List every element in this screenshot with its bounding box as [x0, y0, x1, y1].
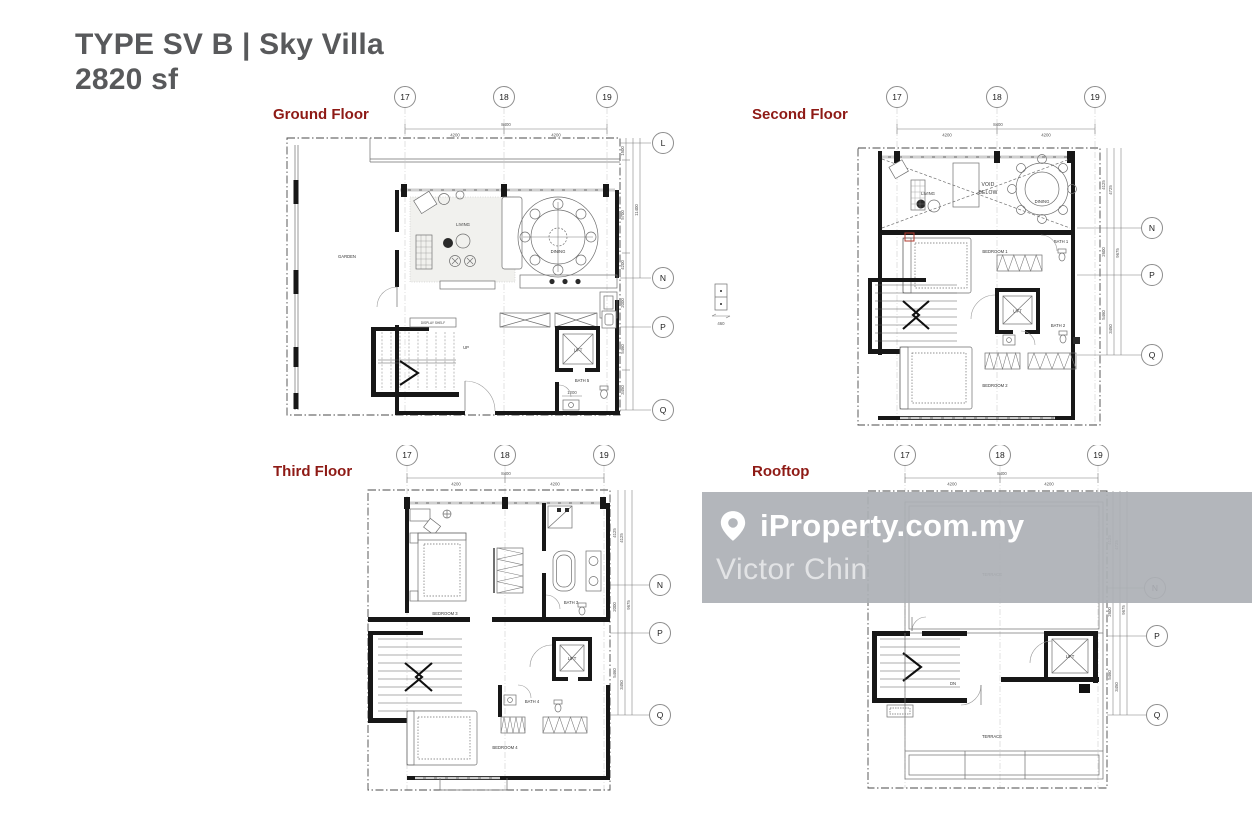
duct-block	[1079, 684, 1090, 693]
dim-seg-right: 4200	[551, 133, 561, 138]
dim-total: 8400	[997, 471, 1007, 476]
side-dim: 4125	[1101, 180, 1106, 190]
room-label-bath1: BATH 1	[1054, 239, 1069, 244]
grid-bubble-L: L	[661, 138, 666, 148]
lift: LIFT	[1001, 631, 1099, 693]
grid-bubble-P: P	[1149, 270, 1155, 280]
grid-bubble-Q: Q	[657, 710, 664, 720]
mid-detail-dim: 460	[717, 321, 725, 326]
room-label-garden: GARDEN	[338, 254, 356, 259]
void-label-2: BELOW	[978, 190, 997, 196]
watermark-brand-row: iProperty.com.my	[716, 508, 1252, 544]
side-dim: 2000	[612, 602, 617, 612]
ground-grid-bubbles-top: 17 18 19	[395, 87, 618, 108]
ground-floor-plan: 17 18 19 8400 4200 4200 GARDEN	[270, 85, 690, 430]
side-dim: 2600	[1101, 247, 1106, 257]
bedroom-4: BEDROOM 4	[407, 711, 518, 765]
lift-label: LIFT	[568, 656, 577, 661]
dim-seg-right: 4200	[1044, 482, 1054, 487]
grid-bubble-19: 19	[1090, 92, 1100, 102]
grid-bubble-Q: Q	[1149, 350, 1156, 360]
side-dim: 5460	[1107, 670, 1112, 680]
lift: LIFT	[530, 637, 592, 681]
room-label-living: LIVING	[456, 222, 470, 227]
room-label-dining: DINING	[1035, 199, 1050, 204]
watermark: iProperty.com.my Victor Chin	[702, 492, 1252, 603]
watermark-brand: iProperty.com.my	[760, 508, 1024, 544]
bath-4: BATH 4	[498, 685, 587, 733]
room-label-bedroom4: BEDROOM 4	[492, 745, 518, 750]
dim-seg-right: 4200	[550, 482, 560, 487]
grid-bubble-N: N	[1149, 223, 1155, 233]
grid-bubble-18: 18	[995, 450, 1005, 460]
side-dim: 5700	[620, 210, 625, 220]
lift: LIFT	[555, 326, 600, 372]
grid-bubble-Q: Q	[1154, 710, 1161, 720]
bedroom-3: BEDROOM 3	[410, 509, 523, 616]
bath-3: BATH 3	[546, 506, 601, 615]
dim-total: 8400	[501, 122, 511, 127]
dim-seg-left: 4200	[942, 133, 952, 138]
room-label-terrace-lower: TERRACE	[982, 734, 1002, 739]
bath-5: BATH 5 1200	[555, 378, 608, 415]
third-top-dimensions: 8400 4200 4200	[407, 471, 604, 487]
staircase	[368, 631, 468, 723]
dim-total: 8400	[501, 471, 511, 476]
grid-bubble-P: P	[1154, 631, 1160, 641]
stair-direction-label: DN	[950, 681, 956, 686]
grid-bubble-P: P	[657, 628, 663, 638]
rooftop-grid-bubbles-top: 17 18 19	[895, 445, 1109, 466]
page-title-line1: TYPE SV B | Sky Villa	[75, 28, 384, 63]
grid-bubble-19: 19	[602, 92, 612, 102]
kitchen	[500, 275, 617, 328]
room-label-bedroom2: BEDROOM 2	[982, 383, 1008, 388]
grid-bubble-Q: Q	[660, 405, 667, 415]
side-dim: 5460	[620, 344, 625, 354]
mid-detail: 460	[700, 280, 745, 335]
side-dim: 9675	[1115, 248, 1120, 258]
side-dim: 9675	[1121, 605, 1126, 615]
grid-bubble-19: 19	[1093, 450, 1103, 460]
bath5-dim: 1200	[567, 390, 577, 395]
grid-bubble-N: N	[657, 580, 663, 590]
stair-direction-label: UP	[463, 345, 469, 350]
dim-seg-left: 4200	[947, 482, 957, 487]
third-grid-right: N P Q 4125 4125 9675 2000 5460 3450	[610, 490, 671, 726]
side-dim: 3450	[1114, 682, 1119, 692]
dim-seg-right: 4200	[1041, 133, 1051, 138]
dim-seg-left: 4200	[450, 133, 460, 138]
void-label-1: VOID	[981, 182, 994, 188]
third-floor-plan: 17 18 19 8400 4200 4200	[270, 445, 690, 805]
side-dim: 5460	[1101, 310, 1106, 320]
side-dim: 5460	[612, 668, 617, 678]
watermark-agent: Victor Chin	[716, 553, 1252, 587]
grid-bubble-17: 17	[900, 450, 910, 460]
grid-bubble-18: 18	[992, 92, 1002, 102]
room-label-bath5: BATH 5	[575, 378, 590, 383]
grid-bubble-17: 17	[400, 92, 410, 102]
lift: LIFT	[971, 288, 1040, 334]
bath-2: BATH 2	[985, 323, 1080, 369]
room-label-bath3: BATH 3	[564, 600, 579, 605]
second-grid-bubbles-top: 17 18 19	[887, 87, 1106, 108]
room-label-bath4: BATH 4	[525, 699, 540, 704]
grid-bubble-18: 18	[499, 92, 509, 102]
void-living-dining: VOID BELOW LIVING DINING	[882, 155, 1077, 229]
side-dim: 2000	[620, 298, 625, 308]
grid-bubble-19: 19	[599, 450, 609, 460]
room-label-dining: DINING	[551, 249, 566, 254]
side-dim: 4725	[1108, 185, 1113, 195]
ground-top-dimensions: 8400 4200 4200	[405, 122, 607, 138]
dim-total: 8400	[993, 122, 1003, 127]
room-label-living: LIVING	[921, 191, 935, 196]
side-dim: 4200	[620, 260, 625, 270]
dining-table: DINING	[518, 197, 598, 277]
room-label-bedroom3: BEDROOM 3	[432, 611, 458, 616]
ground-grid-right: L N P Q 1500 5700 4200 11400 2000 5460 3…	[620, 133, 674, 421]
side-dim: 3450	[1108, 324, 1113, 334]
side-dim: 4125	[619, 533, 624, 543]
grid-bubble-N: N	[660, 273, 666, 283]
side-dim: 11400	[634, 204, 639, 216]
side-dim: 3450	[620, 385, 625, 395]
third-walls	[368, 497, 610, 790]
location-pin-icon	[716, 508, 750, 544]
second-floor-plan: 17 18 19 8400 4200 4200 VOID BELOW LIVIN	[845, 85, 1205, 435]
side-dim: 3450	[619, 680, 624, 690]
grid-bubble-17: 17	[892, 92, 902, 102]
bedroom-1: BEDROOM 1 BATH 1	[903, 233, 1069, 293]
staircase: DN	[872, 617, 981, 717]
dim-seg-left: 4200	[451, 482, 461, 487]
lift-label: LIFT	[574, 348, 583, 353]
second-grid-right: N P Q 4125 4725 9675 2600 5460 3450	[1077, 148, 1163, 366]
lift-label: LIFT	[1013, 309, 1022, 314]
lift-label: LIFT	[1066, 654, 1075, 659]
bedroom-2: BEDROOM 2	[900, 347, 1008, 409]
side-dim: 1500	[620, 146, 625, 156]
living-room: LIVING	[410, 191, 522, 289]
grid-bubble-P: P	[660, 322, 666, 332]
display-shelf-label: DISPLAY SHELF	[421, 321, 445, 325]
grid-bubble-18: 18	[500, 450, 510, 460]
side-dim: 9675	[626, 600, 631, 610]
side-dim: 4125	[612, 528, 617, 538]
rooftop-top-dimensions: 8400 4200 4200	[905, 471, 1098, 487]
grid-bubble-17: 17	[402, 450, 412, 460]
staircase: UP DISPLAY SHELF	[371, 318, 469, 397]
floor-label-second: Second Floor	[752, 106, 848, 123]
second-top-dimensions: 8400 4200 4200	[897, 122, 1095, 138]
room-label-bath2: BATH 2	[1051, 323, 1066, 328]
room-label-bedroom1: BEDROOM 1	[982, 249, 1008, 254]
side-dim: 2600	[1107, 607, 1112, 617]
floor-label-rooftop: Rooftop	[752, 463, 809, 480]
third-grid-bubbles-top: 17 18 19	[397, 445, 615, 466]
floor-plan-sheet: TYPE SV B | Sky Villa 2820 sf Ground Flo…	[0, 0, 1252, 825]
